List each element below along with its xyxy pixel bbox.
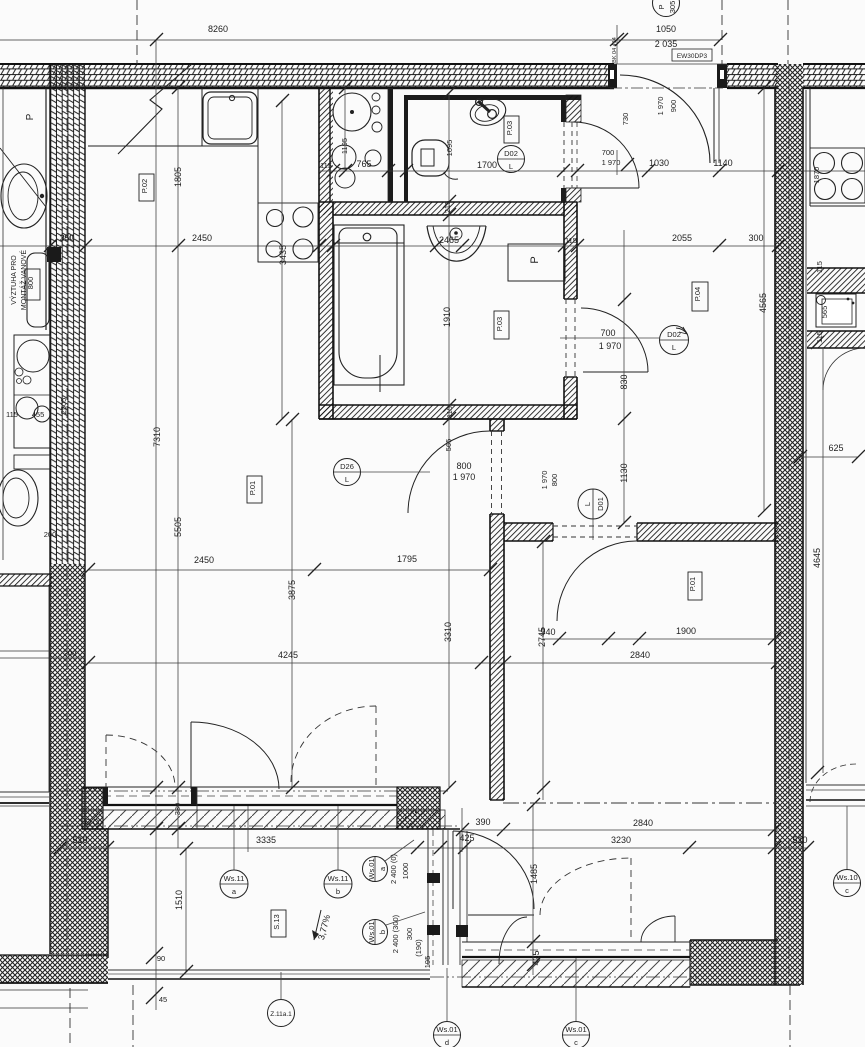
svg-text:390: 390 — [475, 817, 490, 827]
svg-text:2745: 2745 — [537, 627, 547, 647]
svg-text:115: 115 — [815, 261, 824, 273]
svg-text:S.13: S.13 — [272, 914, 281, 929]
svg-text:625: 625 — [828, 443, 843, 453]
svg-text:830: 830 — [619, 374, 629, 389]
svg-text:L: L — [509, 162, 513, 171]
svg-text:2 035: 2 035 — [655, 39, 678, 49]
svg-text:380: 380 — [173, 803, 182, 816]
svg-text:3335: 3335 — [256, 835, 276, 845]
svg-text:800: 800 — [550, 474, 559, 487]
svg-text:Ws.01: Ws.01 — [436, 1025, 457, 1034]
svg-text:730: 730 — [621, 113, 630, 126]
svg-text:4645: 4645 — [812, 548, 822, 568]
svg-text:455: 455 — [32, 410, 45, 419]
svg-text:P.01: P.01 — [248, 481, 257, 495]
svg-text:Ws.01: Ws.01 — [565, 1025, 586, 1034]
svg-text:1485: 1485 — [529, 864, 539, 884]
svg-text:Ws.11: Ws.11 — [224, 874, 245, 883]
svg-text:700: 700 — [602, 148, 615, 157]
svg-text:1510: 1510 — [174, 890, 184, 910]
svg-text:d: d — [445, 1038, 449, 1047]
svg-text:P.02: P.02 — [140, 179, 149, 193]
svg-text:2840: 2840 — [630, 650, 650, 660]
svg-text:510: 510 — [72, 835, 87, 845]
svg-text:1130: 1130 — [619, 463, 629, 482]
svg-text:350: 350 — [61, 233, 74, 242]
svg-text:1050: 1050 — [656, 24, 676, 34]
svg-text:1795: 1795 — [397, 554, 417, 564]
svg-text:1195: 1195 — [340, 138, 349, 154]
svg-text:1 970: 1 970 — [602, 158, 621, 167]
svg-text:1900: 1900 — [676, 626, 696, 636]
svg-text:b: b — [378, 930, 387, 934]
svg-text:1 970: 1 970 — [599, 341, 622, 351]
svg-text:1700: 1700 — [477, 160, 497, 170]
svg-text:300: 300 — [64, 649, 77, 658]
svg-text:3310: 3310 — [443, 622, 453, 642]
svg-text:VÝZTUHA PRO: VÝZTUHA PRO — [9, 255, 18, 305]
svg-text:D01: D01 — [596, 497, 605, 511]
svg-text:L: L — [583, 502, 592, 506]
svg-text:115: 115 — [6, 410, 18, 419]
svg-text:4565: 4565 — [758, 293, 768, 313]
svg-text:D02: D02 — [667, 330, 681, 339]
svg-text:Ws.11: Ws.11 — [328, 874, 349, 883]
svg-text:Ws.01: Ws.01 — [367, 921, 376, 942]
svg-text:1870: 1870 — [812, 167, 821, 184]
svg-text:D26: D26 — [340, 462, 354, 471]
svg-text:3435: 3435 — [278, 245, 288, 265]
svg-text:4245: 4245 — [278, 650, 298, 660]
svg-text:1 970: 1 970 — [656, 97, 665, 116]
svg-text:Ws.10: Ws.10 — [836, 873, 857, 882]
svg-text:c: c — [574, 1038, 578, 1047]
svg-text:(190): (190) — [414, 939, 423, 957]
svg-text:Ws.01: Ws.01 — [367, 858, 376, 879]
svg-text:L: L — [672, 343, 676, 352]
svg-text:90: 90 — [157, 954, 165, 963]
svg-text:510: 510 — [792, 835, 807, 845]
svg-text:BK 04 414: BK 04 414 — [612, 37, 618, 63]
svg-text:D02: D02 — [504, 149, 518, 158]
svg-text:200: 200 — [44, 530, 57, 539]
svg-text:300: 300 — [405, 928, 414, 941]
svg-text:P: P — [657, 4, 666, 9]
svg-text:700: 700 — [600, 328, 615, 338]
svg-text:2055: 2055 — [672, 233, 692, 243]
svg-text:P.01: P.01 — [688, 577, 697, 591]
svg-text:900: 900 — [669, 100, 678, 113]
svg-text:P.03: P.03 — [495, 317, 504, 331]
svg-text:5505: 5505 — [173, 517, 183, 537]
svg-text:1 970: 1 970 — [453, 472, 476, 482]
svg-text:1 970: 1 970 — [540, 471, 549, 490]
svg-text:c: c — [845, 886, 849, 895]
svg-text:1095: 1095 — [445, 140, 454, 157]
svg-text:b: b — [336, 887, 340, 896]
svg-text:Z.11a.1: Z.11a.1 — [270, 1011, 292, 1018]
svg-text:7310: 7310 — [152, 427, 162, 447]
svg-text:1910: 1910 — [442, 307, 452, 327]
svg-text:45: 45 — [159, 995, 167, 1004]
svg-text:195: 195 — [423, 956, 432, 969]
svg-text:2505: 2505 — [59, 398, 68, 415]
svg-text:P.04: P.04 — [693, 287, 702, 301]
svg-text:2450: 2450 — [192, 233, 212, 243]
svg-text:800: 800 — [456, 461, 471, 471]
svg-text:EW30DP3: EW30DP3 — [677, 53, 708, 60]
svg-text:1805: 1805 — [173, 167, 183, 187]
svg-text:2840: 2840 — [633, 818, 653, 828]
svg-text:3230: 3230 — [611, 835, 631, 845]
svg-text:L: L — [345, 475, 349, 484]
svg-text:MONTÁŽ VANOVÉ: MONTÁŽ VANOVÉ — [19, 250, 28, 310]
svg-text:115: 115 — [320, 161, 332, 170]
svg-text:300: 300 — [748, 233, 763, 243]
svg-text:P: P — [529, 256, 541, 263]
svg-text:8260: 8260 — [208, 24, 228, 34]
svg-text:1000: 1000 — [401, 863, 410, 880]
svg-text:P.03: P.03 — [505, 121, 514, 135]
svg-text:305: 305 — [668, 1, 677, 14]
svg-text:3875: 3875 — [287, 580, 297, 600]
svg-text:2450: 2450 — [194, 555, 214, 565]
svg-text:565: 565 — [444, 439, 453, 452]
svg-text:765: 765 — [356, 159, 371, 169]
svg-text:2 400 (300): 2 400 (300) — [391, 914, 400, 953]
svg-text:P: P — [25, 113, 36, 120]
svg-text:565: 565 — [820, 306, 829, 319]
svg-text:2 400 (0): 2 400 (0) — [389, 853, 398, 884]
